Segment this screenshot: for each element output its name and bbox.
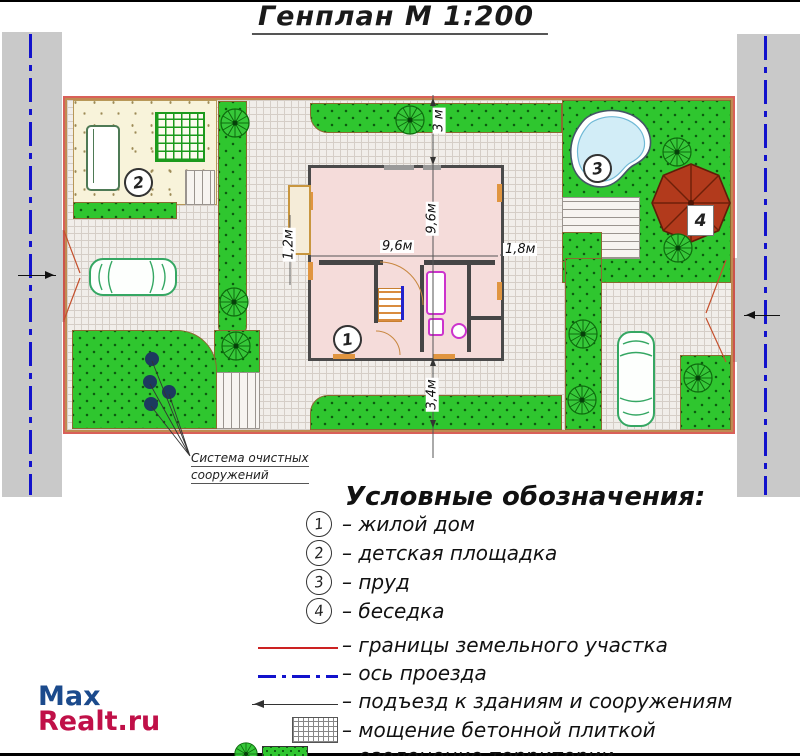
marker-playground-number: 2 xyxy=(132,172,146,192)
site-plan: 1 2 3 4 3 м 9,6м 9,6м 1,2м 1,8м 3,4м Сис… xyxy=(0,30,800,500)
legend-item-house: – жилой дом xyxy=(342,512,475,536)
legend-item-pond: – пруд xyxy=(342,570,410,594)
entry-arrow-left xyxy=(18,275,56,276)
dimension-top: 3 м xyxy=(433,107,446,133)
septic-note-line1: Система очистных xyxy=(191,450,309,467)
legend-header: Условные обозначения: xyxy=(345,482,705,512)
septic-note: Система очистных сооружений xyxy=(191,450,309,484)
logo-part2: Realt.ru xyxy=(38,709,160,734)
dimension-left: 1,2м xyxy=(283,227,296,261)
maxrealt-logo[interactable]: Max Realt.ru xyxy=(38,684,160,734)
legend-item-boundary: – границы земельного участка xyxy=(342,633,668,657)
dimension-vertical: 9,6м xyxy=(426,201,439,235)
access-arrow-icon xyxy=(246,692,338,716)
legend-item-gazebo: – беседка xyxy=(342,599,444,623)
dimension-bottom: 3,4м xyxy=(426,377,439,411)
legend-item-paving: – мощение бетонной плиткой xyxy=(342,718,656,742)
legend-num-icon: 4 xyxy=(304,596,333,625)
legend-item-access: – подъезд к зданиям и сооружениям xyxy=(342,689,732,713)
greenery-swatch-icon xyxy=(216,744,308,756)
legend-num-icon: 2 xyxy=(304,538,333,567)
entry-arrow-right xyxy=(744,315,780,316)
legend-num-4: 4 xyxy=(313,601,325,620)
legend-num-1: 1 xyxy=(313,514,325,533)
legend-item-playground: – детская площадка xyxy=(342,541,557,565)
septic-note-line2: сооружений xyxy=(191,467,309,484)
legend-num-icon: 1 xyxy=(304,509,333,538)
red-line-icon xyxy=(246,636,338,660)
legend-num-3: 3 xyxy=(313,572,325,591)
marker-gazebo-number: 4 xyxy=(695,211,707,231)
tree-icon xyxy=(234,742,258,756)
legend-num-2: 2 xyxy=(313,543,325,562)
legend-item-axis: – ось проезда xyxy=(342,661,487,685)
marker-gazebo: 4 xyxy=(687,205,714,236)
legend-num-icon: 3 xyxy=(304,567,333,596)
marker-house-number: 1 xyxy=(341,329,355,349)
paving-swatch-icon xyxy=(246,717,338,743)
dimension-horizontal: 9,6м xyxy=(380,240,414,253)
legend-item-greenery: – озеленение территории xyxy=(342,744,614,756)
marker-pond-number: 3 xyxy=(591,158,605,178)
plan-annotation-lines xyxy=(0,30,800,500)
dimension-right: 1,8м xyxy=(503,243,537,256)
blue-dash-dot-icon xyxy=(246,664,338,688)
genplan-page: Генплан М 1:200 xyxy=(0,0,800,756)
